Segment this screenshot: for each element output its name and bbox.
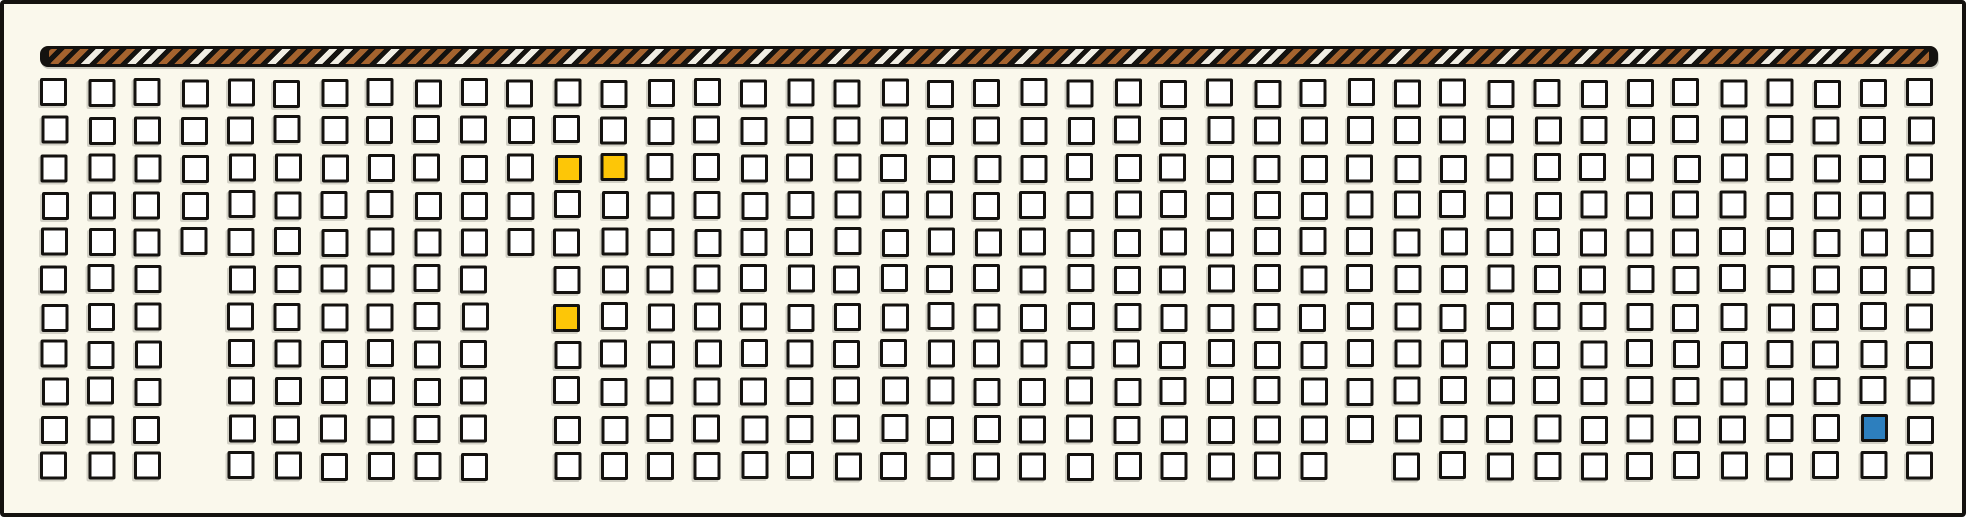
grid-cell[interactable] bbox=[87, 415, 114, 443]
grid-cell[interactable] bbox=[1347, 302, 1374, 330]
grid-cell[interactable] bbox=[1207, 155, 1234, 183]
grid-cell[interactable] bbox=[1439, 451, 1466, 479]
grid-cell[interactable] bbox=[1813, 414, 1840, 442]
grid-cell-yellow[interactable] bbox=[555, 155, 582, 183]
grid-cell[interactable] bbox=[88, 79, 115, 107]
grid-cell[interactable] bbox=[1066, 377, 1093, 405]
grid-cell[interactable] bbox=[833, 414, 860, 442]
grid-cell[interactable] bbox=[320, 265, 347, 293]
grid-cell[interactable] bbox=[1208, 416, 1235, 444]
grid-cell[interactable] bbox=[1533, 376, 1560, 404]
grid-cell[interactable] bbox=[1487, 302, 1514, 330]
grid-cell[interactable] bbox=[1440, 155, 1467, 183]
grid-cell[interactable] bbox=[1626, 229, 1653, 257]
grid-cell[interactable] bbox=[88, 153, 115, 181]
grid-cell[interactable] bbox=[1859, 116, 1886, 144]
grid-cell[interactable] bbox=[882, 79, 909, 107]
grid-cell[interactable] bbox=[1066, 153, 1093, 181]
grid-cell[interactable] bbox=[1253, 376, 1280, 404]
grid-cell[interactable] bbox=[88, 451, 115, 479]
grid-cell[interactable] bbox=[1487, 265, 1514, 293]
grid-cell[interactable] bbox=[1860, 340, 1887, 368]
grid-cell[interactable] bbox=[461, 155, 488, 183]
grid-cell[interactable] bbox=[926, 190, 953, 218]
grid-cell[interactable] bbox=[89, 191, 116, 219]
grid-cell[interactable] bbox=[1626, 191, 1653, 219]
grid-cell[interactable] bbox=[1393, 377, 1420, 405]
grid-cell[interactable] bbox=[882, 303, 909, 331]
grid-cell[interactable] bbox=[460, 266, 487, 294]
grid-cell[interactable] bbox=[1160, 190, 1187, 218]
grid-cell[interactable] bbox=[1347, 415, 1374, 443]
grid-cell[interactable] bbox=[1673, 451, 1700, 479]
grid-cell[interactable] bbox=[1720, 190, 1747, 218]
grid-cell[interactable] bbox=[321, 453, 348, 481]
grid-cell[interactable] bbox=[227, 117, 254, 145]
grid-cell[interactable] bbox=[228, 377, 255, 405]
grid-cell[interactable] bbox=[1159, 266, 1186, 294]
grid-cell[interactable] bbox=[227, 451, 254, 479]
grid-cell[interactable] bbox=[1673, 377, 1700, 405]
grid-cell[interactable] bbox=[1206, 79, 1233, 107]
grid-cell[interactable] bbox=[1814, 191, 1841, 219]
grid-cell[interactable] bbox=[1533, 341, 1560, 369]
grid-cell[interactable] bbox=[1721, 341, 1748, 369]
grid-cell[interactable] bbox=[1115, 154, 1142, 182]
grid-cell[interactable] bbox=[1067, 80, 1094, 108]
grid-cell[interactable] bbox=[1859, 376, 1886, 404]
grid-cell[interactable] bbox=[648, 79, 675, 107]
grid-cell[interactable] bbox=[601, 302, 628, 330]
grid-cell[interactable] bbox=[1721, 451, 1748, 479]
grid-cell[interactable] bbox=[368, 377, 395, 405]
grid-cell[interactable] bbox=[1347, 116, 1374, 144]
grid-cell[interactable] bbox=[553, 115, 580, 143]
grid-cell[interactable] bbox=[648, 191, 675, 219]
grid-cell[interactable] bbox=[1300, 227, 1327, 255]
grid-cell[interactable] bbox=[1721, 80, 1748, 108]
grid-cell[interactable] bbox=[787, 116, 814, 144]
grid-cell[interactable] bbox=[182, 80, 209, 108]
grid-cell[interactable] bbox=[275, 377, 302, 405]
grid-cell[interactable] bbox=[787, 415, 814, 443]
grid-cell[interactable] bbox=[1766, 192, 1793, 220]
grid-cell[interactable] bbox=[1579, 266, 1606, 294]
grid-cell[interactable] bbox=[1672, 78, 1699, 106]
grid-cell[interactable] bbox=[740, 378, 767, 406]
grid-cell[interactable] bbox=[1394, 302, 1421, 330]
grid-cell[interactable] bbox=[555, 79, 582, 107]
grid-cell[interactable] bbox=[647, 414, 674, 442]
grid-cell[interactable] bbox=[1300, 79, 1327, 107]
grid-cell[interactable] bbox=[788, 265, 815, 293]
grid-cell[interactable] bbox=[42, 192, 69, 220]
grid-cell[interactable] bbox=[1301, 192, 1328, 220]
grid-cell[interactable] bbox=[181, 117, 208, 145]
grid-cell[interactable] bbox=[1812, 303, 1839, 331]
grid-cell[interactable] bbox=[1766, 79, 1793, 107]
grid-cell[interactable] bbox=[882, 377, 909, 405]
grid-cell[interactable] bbox=[462, 302, 489, 330]
grid-cell[interactable] bbox=[229, 266, 256, 294]
grid-cell[interactable] bbox=[368, 228, 395, 256]
grid-cell[interactable] bbox=[693, 153, 720, 181]
grid-cell[interactable] bbox=[1348, 78, 1375, 106]
grid-cell[interactable] bbox=[1160, 228, 1187, 256]
grid-cell[interactable] bbox=[1719, 415, 1746, 443]
grid-cell[interactable] bbox=[414, 264, 441, 292]
grid-cell[interactable] bbox=[1114, 303, 1141, 331]
grid-cell[interactable] bbox=[1113, 340, 1140, 368]
grid-cell[interactable] bbox=[601, 416, 628, 444]
grid-cell[interactable] bbox=[1812, 341, 1839, 369]
grid-cell[interactable] bbox=[41, 340, 68, 368]
grid-cell[interactable] bbox=[787, 451, 814, 479]
grid-cell[interactable] bbox=[506, 80, 533, 108]
grid-cell[interactable] bbox=[648, 303, 675, 331]
grid-cell[interactable] bbox=[1253, 303, 1280, 331]
grid-cell[interactable] bbox=[882, 190, 909, 218]
grid-cell[interactable] bbox=[135, 265, 162, 293]
grid-cell[interactable] bbox=[274, 227, 301, 255]
grid-cell[interactable] bbox=[1394, 265, 1421, 293]
grid-cell[interactable] bbox=[1533, 302, 1560, 330]
grid-cell[interactable] bbox=[834, 303, 861, 331]
grid-cell[interactable] bbox=[882, 229, 909, 257]
grid-cell[interactable] bbox=[367, 190, 394, 218]
grid-cell[interactable] bbox=[928, 452, 955, 480]
grid-cell[interactable] bbox=[786, 153, 813, 181]
grid-cell[interactable] bbox=[1487, 80, 1514, 108]
grid-cell[interactable] bbox=[1626, 303, 1653, 331]
grid-cell[interactable] bbox=[508, 228, 535, 256]
grid-cell[interactable] bbox=[1019, 415, 1046, 443]
grid-cell[interactable] bbox=[415, 192, 442, 220]
grid-cell[interactable] bbox=[1533, 228, 1560, 256]
grid-cell[interactable] bbox=[134, 78, 161, 106]
grid-cell[interactable] bbox=[1253, 155, 1280, 183]
grid-cell[interactable] bbox=[1254, 264, 1281, 292]
grid-cell[interactable] bbox=[1486, 415, 1513, 443]
grid-cell[interactable] bbox=[554, 416, 581, 444]
grid-cell[interactable] bbox=[1906, 153, 1933, 181]
grid-cell[interactable] bbox=[1581, 452, 1608, 480]
grid-cell[interactable] bbox=[1159, 153, 1186, 181]
grid-cell[interactable] bbox=[135, 154, 162, 182]
grid-cell[interactable] bbox=[1580, 302, 1607, 330]
grid-cell[interactable] bbox=[228, 339, 255, 367]
grid-cell[interactable] bbox=[1441, 265, 1468, 293]
grid-cell[interactable] bbox=[787, 340, 814, 368]
grid-cell[interactable] bbox=[1440, 376, 1467, 404]
grid-cell[interactable] bbox=[42, 116, 69, 144]
grid-cell[interactable] bbox=[1674, 155, 1701, 183]
grid-cell[interactable] bbox=[740, 228, 767, 256]
grid-cell[interactable] bbox=[833, 80, 860, 108]
grid-cell[interactable] bbox=[1299, 304, 1326, 332]
grid-cell[interactable] bbox=[1581, 80, 1608, 108]
grid-cell[interactable] bbox=[368, 265, 395, 293]
grid-cell[interactable] bbox=[648, 117, 675, 145]
grid-cell[interactable] bbox=[1673, 340, 1700, 368]
grid-cell[interactable] bbox=[1301, 378, 1328, 406]
grid-cell[interactable] bbox=[554, 190, 581, 218]
grid-cell[interactable] bbox=[1672, 304, 1699, 332]
grid-cell[interactable] bbox=[1393, 229, 1420, 257]
grid-cell[interactable] bbox=[1301, 452, 1328, 480]
grid-cell[interactable] bbox=[275, 340, 302, 368]
grid-cell[interactable] bbox=[1019, 228, 1046, 256]
grid-cell[interactable] bbox=[973, 452, 1000, 480]
grid-cell[interactable] bbox=[928, 228, 955, 256]
grid-cell[interactable] bbox=[1159, 341, 1186, 369]
grid-cell[interactable] bbox=[508, 116, 535, 144]
grid-cell[interactable] bbox=[460, 340, 487, 368]
grid-cell[interactable] bbox=[1254, 80, 1281, 108]
grid-cell[interactable] bbox=[647, 266, 674, 294]
grid-cell[interactable] bbox=[182, 192, 209, 220]
grid-cell[interactable] bbox=[1393, 452, 1420, 480]
grid-cell[interactable] bbox=[135, 341, 162, 369]
grid-cell[interactable] bbox=[413, 115, 440, 143]
grid-cell[interactable] bbox=[1347, 339, 1374, 367]
grid-cell[interactable] bbox=[1346, 190, 1373, 218]
grid-cell[interactable] bbox=[367, 303, 394, 331]
grid-cell[interactable] bbox=[1627, 153, 1654, 181]
grid-cell[interactable] bbox=[414, 302, 441, 330]
grid-cell[interactable] bbox=[1907, 266, 1934, 294]
grid-cell[interactable] bbox=[741, 339, 768, 367]
grid-cell[interactable] bbox=[1581, 341, 1608, 369]
grid-cell[interactable] bbox=[1114, 266, 1141, 294]
grid-cell[interactable] bbox=[927, 80, 954, 108]
grid-cell[interactable] bbox=[1021, 340, 1048, 368]
grid-cell[interactable] bbox=[40, 78, 67, 106]
grid-cell[interactable] bbox=[1768, 303, 1795, 331]
grid-cell[interactable] bbox=[694, 78, 721, 106]
grid-cell[interactable] bbox=[1486, 153, 1513, 181]
grid-cell[interactable] bbox=[973, 192, 1000, 220]
grid-cell[interactable] bbox=[321, 303, 348, 331]
grid-cell[interactable] bbox=[40, 451, 67, 479]
grid-cell[interactable] bbox=[1021, 78, 1048, 106]
grid-cell[interactable] bbox=[1395, 414, 1422, 442]
grid-cell[interactable] bbox=[1439, 116, 1466, 144]
grid-cell[interactable] bbox=[1859, 155, 1886, 183]
grid-cell[interactable] bbox=[1814, 80, 1841, 108]
grid-cell[interactable] bbox=[740, 117, 767, 145]
grid-cell[interactable] bbox=[1439, 79, 1466, 107]
grid-cell[interactable] bbox=[1254, 117, 1281, 145]
grid-cell[interactable] bbox=[1767, 265, 1794, 293]
grid-cell[interactable] bbox=[973, 378, 1000, 406]
grid-cell[interactable] bbox=[1346, 227, 1373, 255]
grid-cell[interactable] bbox=[461, 453, 488, 481]
grid-cell[interactable] bbox=[461, 192, 488, 220]
grid-cell[interactable] bbox=[415, 229, 442, 257]
grid-cell[interactable] bbox=[1907, 377, 1934, 405]
grid-cell[interactable] bbox=[601, 452, 628, 480]
grid-cell[interactable] bbox=[508, 192, 535, 220]
grid-cell[interactable] bbox=[228, 190, 255, 218]
grid-cell[interactable] bbox=[274, 303, 301, 331]
grid-cell[interactable] bbox=[1068, 117, 1095, 145]
grid-cell[interactable] bbox=[1767, 227, 1794, 255]
grid-cell[interactable] bbox=[833, 117, 860, 145]
grid-cell[interactable] bbox=[1346, 378, 1373, 406]
grid-cell[interactable] bbox=[182, 155, 209, 183]
grid-cell[interactable] bbox=[1019, 378, 1046, 406]
grid-cell[interactable] bbox=[881, 414, 908, 442]
grid-cell[interactable] bbox=[973, 117, 1000, 145]
grid-cell[interactable] bbox=[1860, 79, 1887, 107]
grid-cell[interactable] bbox=[135, 302, 162, 330]
grid-cell[interactable] bbox=[1208, 265, 1235, 293]
grid-cell[interactable] bbox=[602, 266, 629, 294]
grid-cell[interactable] bbox=[275, 153, 302, 181]
grid-cell[interactable] bbox=[1766, 414, 1793, 442]
grid-cell[interactable] bbox=[1208, 452, 1235, 480]
grid-cell[interactable] bbox=[647, 153, 674, 181]
grid-cell[interactable] bbox=[740, 264, 767, 292]
grid-cell[interactable] bbox=[1580, 229, 1607, 257]
grid-cell[interactable] bbox=[1486, 228, 1513, 256]
grid-cell[interactable] bbox=[88, 303, 115, 331]
grid-cell[interactable] bbox=[1906, 341, 1933, 369]
grid-cell-blue[interactable] bbox=[1861, 414, 1888, 442]
grid-cell[interactable] bbox=[41, 416, 68, 444]
grid-cell[interactable] bbox=[1626, 452, 1653, 480]
grid-cell[interactable] bbox=[274, 115, 301, 143]
grid-cell[interactable] bbox=[1394, 155, 1421, 183]
grid-cell[interactable] bbox=[1160, 377, 1187, 405]
grid-cell[interactable] bbox=[1254, 415, 1281, 443]
grid-cell[interactable] bbox=[1534, 153, 1561, 181]
grid-cell[interactable] bbox=[460, 377, 487, 405]
grid-cell[interactable] bbox=[1254, 451, 1281, 479]
grid-cell[interactable] bbox=[1346, 154, 1373, 182]
grid-cell[interactable] bbox=[1161, 415, 1188, 443]
grid-cell[interactable] bbox=[1207, 376, 1234, 404]
grid-cell[interactable] bbox=[600, 117, 627, 145]
grid-cell[interactable] bbox=[1579, 153, 1606, 181]
grid-cell[interactable] bbox=[741, 192, 768, 220]
grid-cell[interactable] bbox=[1860, 451, 1887, 479]
grid-cell[interactable] bbox=[1627, 79, 1654, 107]
grid-cell[interactable] bbox=[1859, 191, 1886, 219]
grid-cell[interactable] bbox=[1208, 116, 1235, 144]
grid-cell[interactable] bbox=[1907, 416, 1934, 444]
grid-cell[interactable] bbox=[693, 414, 720, 442]
grid-cell[interactable] bbox=[1441, 228, 1468, 256]
grid-cell[interactable] bbox=[693, 116, 720, 144]
grid-cell[interactable] bbox=[1766, 153, 1793, 181]
grid-cell[interactable] bbox=[786, 228, 813, 256]
grid-cell[interactable] bbox=[693, 191, 720, 219]
grid-cell[interactable] bbox=[973, 79, 1000, 107]
grid-cell[interactable] bbox=[320, 191, 347, 219]
grid-cell[interactable] bbox=[880, 339, 907, 367]
grid-cell[interactable] bbox=[1534, 452, 1561, 480]
grid-cell[interactable] bbox=[1626, 414, 1653, 442]
grid-cell[interactable] bbox=[40, 266, 67, 294]
grid-cell[interactable] bbox=[928, 340, 955, 368]
grid-cell[interactable] bbox=[367, 339, 394, 367]
grid-cell[interactable] bbox=[41, 228, 68, 256]
grid-cell[interactable] bbox=[1161, 452, 1188, 480]
grid-cell[interactable] bbox=[973, 340, 1000, 368]
grid-cell[interactable] bbox=[1626, 376, 1653, 404]
grid-cell[interactable] bbox=[741, 154, 768, 182]
grid-cell[interactable] bbox=[740, 302, 767, 330]
grid-cell[interactable] bbox=[1254, 191, 1281, 219]
grid-cell[interactable] bbox=[1628, 116, 1655, 144]
grid-cell[interactable] bbox=[833, 266, 860, 294]
grid-cell[interactable] bbox=[788, 191, 815, 219]
grid-cell[interactable] bbox=[1674, 415, 1701, 443]
grid-cell[interactable] bbox=[415, 452, 442, 480]
grid-cell[interactable] bbox=[1906, 303, 1933, 331]
grid-cell[interactable] bbox=[555, 452, 582, 480]
grid-cell[interactable] bbox=[927, 117, 954, 145]
grid-cell[interactable] bbox=[1113, 416, 1140, 444]
grid-cell[interactable] bbox=[973, 264, 1000, 292]
grid-cell[interactable] bbox=[1860, 302, 1887, 330]
grid-cell[interactable] bbox=[1019, 452, 1046, 480]
grid-cell[interactable] bbox=[1114, 116, 1141, 144]
grid-cell[interactable] bbox=[973, 303, 1000, 331]
grid-cell[interactable] bbox=[366, 116, 393, 144]
grid-cell[interactable] bbox=[1068, 302, 1095, 330]
grid-cell[interactable] bbox=[741, 451, 768, 479]
grid-cell[interactable] bbox=[134, 117, 161, 145]
grid-cell[interactable] bbox=[1860, 266, 1887, 294]
grid-cell[interactable] bbox=[1207, 229, 1234, 257]
grid-cell[interactable] bbox=[1673, 266, 1700, 294]
grid-cell[interactable] bbox=[1719, 227, 1746, 255]
grid-cell[interactable] bbox=[1394, 340, 1421, 368]
grid-cell[interactable] bbox=[1394, 190, 1421, 218]
grid-cell[interactable] bbox=[787, 377, 814, 405]
grid-cell[interactable] bbox=[1301, 266, 1328, 294]
grid-cell[interactable] bbox=[1766, 452, 1793, 480]
grid-cell[interactable] bbox=[1534, 414, 1561, 442]
grid-cell[interactable] bbox=[975, 229, 1002, 257]
grid-cell[interactable] bbox=[926, 265, 953, 293]
grid-cell[interactable] bbox=[1581, 190, 1608, 218]
grid-cell[interactable] bbox=[1021, 155, 1048, 183]
grid-cell[interactable] bbox=[1115, 79, 1142, 107]
grid-cell[interactable] bbox=[788, 79, 815, 107]
grid-cell[interactable] bbox=[600, 378, 627, 406]
grid-cell[interactable] bbox=[928, 302, 955, 330]
grid-cell[interactable] bbox=[1254, 341, 1281, 369]
grid-cell[interactable] bbox=[1721, 116, 1748, 144]
grid-cell[interactable] bbox=[1812, 451, 1839, 479]
grid-cell[interactable] bbox=[1626, 339, 1653, 367]
grid-cell[interactable] bbox=[1906, 191, 1933, 219]
grid-cell[interactable] bbox=[928, 155, 955, 183]
grid-cell[interactable] bbox=[321, 376, 348, 404]
grid-cell[interactable] bbox=[134, 451, 161, 479]
grid-cell[interactable] bbox=[1487, 452, 1514, 480]
grid-cell[interactable] bbox=[1160, 80, 1187, 108]
grid-cell[interactable] bbox=[229, 153, 256, 181]
grid-cell[interactable] bbox=[42, 304, 69, 332]
grid-cell[interactable] bbox=[1488, 377, 1515, 405]
grid-cell[interactable] bbox=[133, 191, 160, 219]
grid-cell[interactable] bbox=[1813, 117, 1840, 145]
